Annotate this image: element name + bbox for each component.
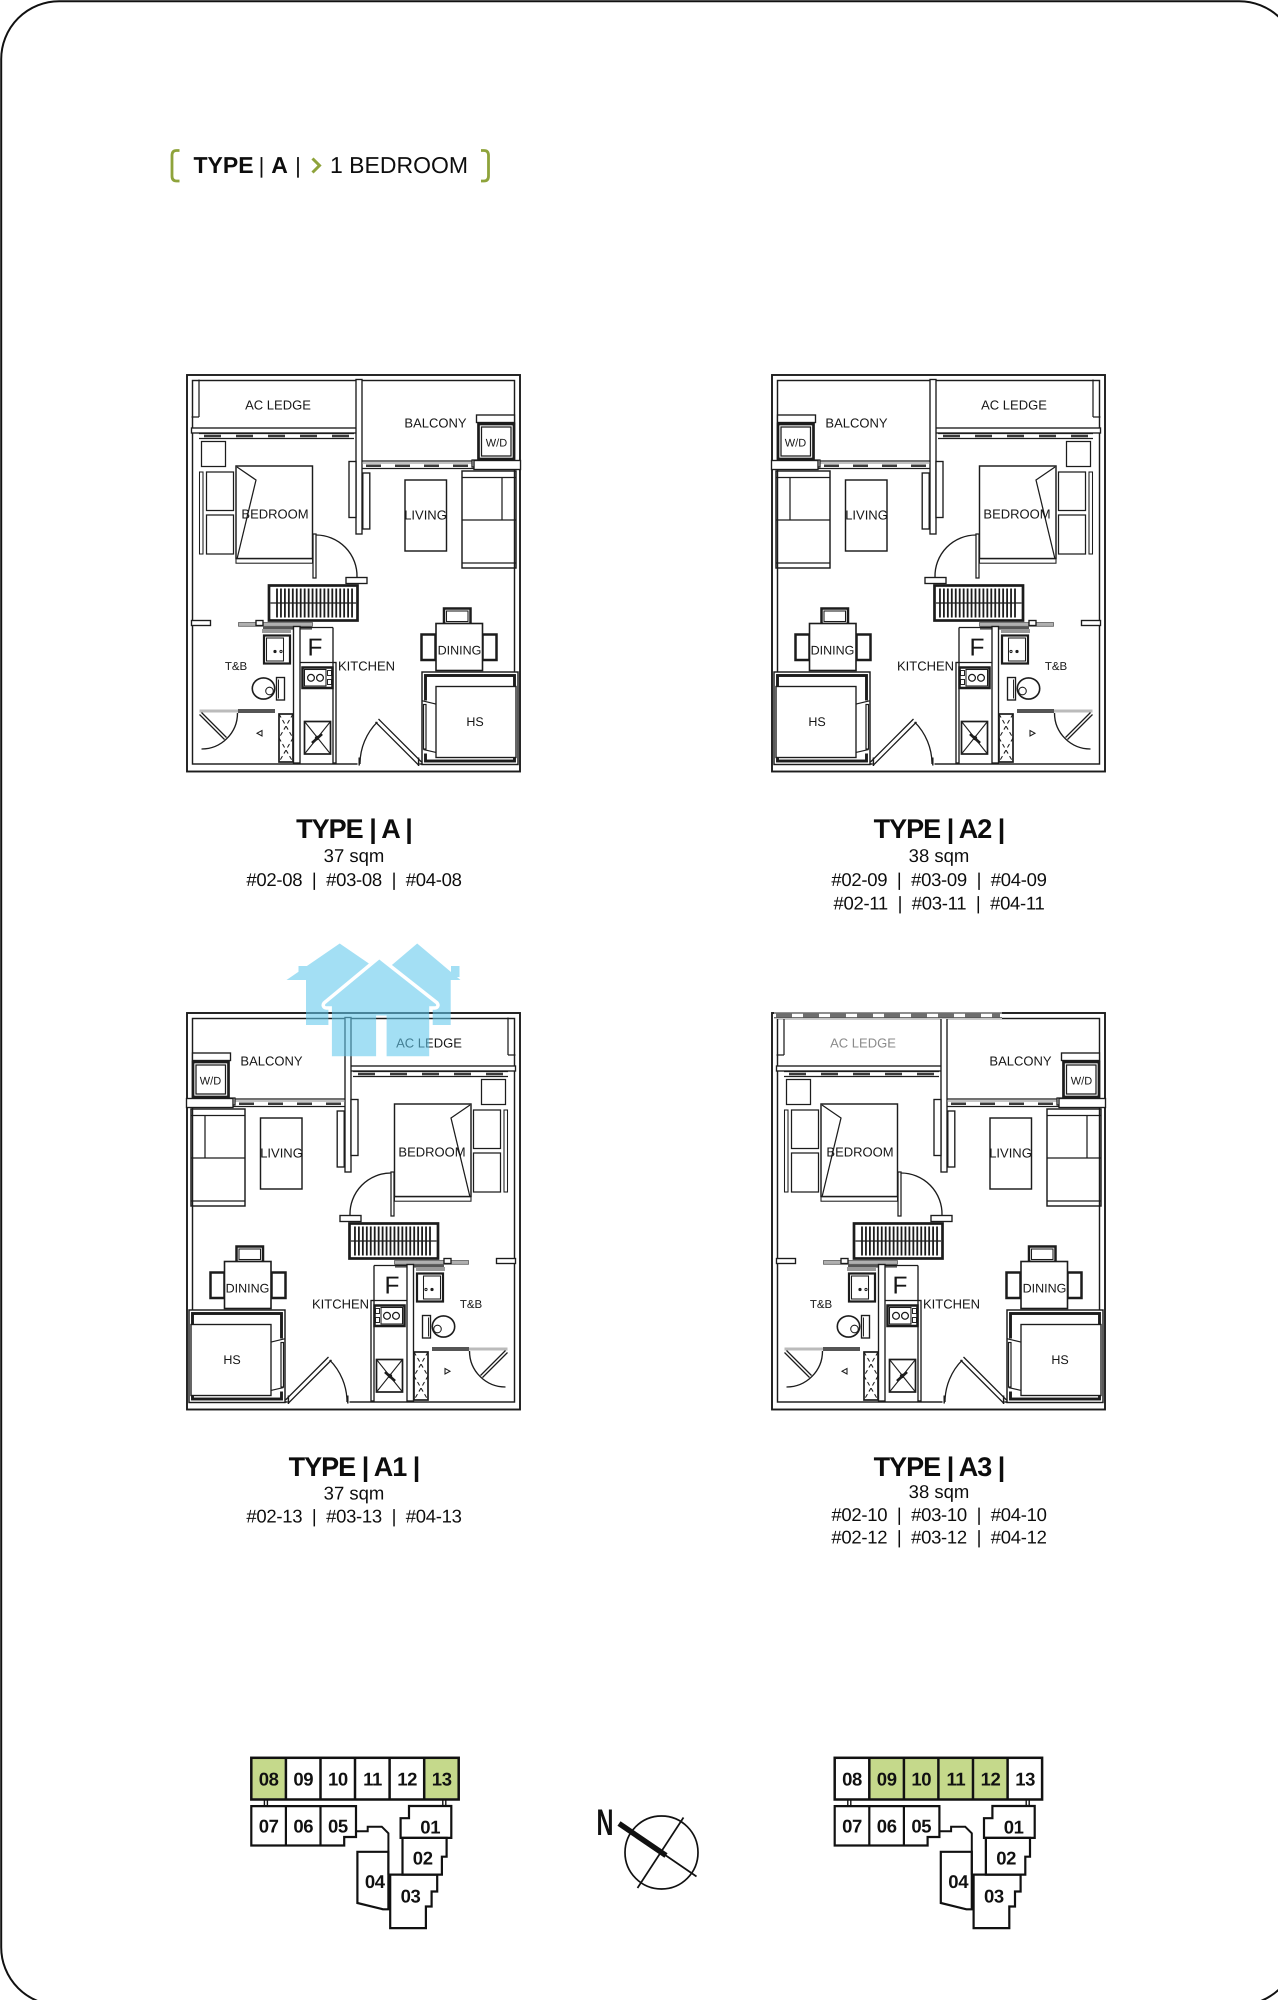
svg-text:W/D: W/D (200, 1076, 221, 1088)
svg-text:KITCHEN: KITCHEN (338, 659, 395, 674)
svg-text:#02-09 | #03-09 | #04-09: #02-09 | #03-09 | #04-09 (831, 869, 1046, 890)
svg-text:KITCHEN: KITCHEN (923, 1297, 980, 1312)
svg-text:HS: HS (1051, 1353, 1068, 1367)
svg-text:AC LEDGE: AC LEDGE (830, 1036, 896, 1051)
svg-text:DINING: DINING (811, 644, 855, 658)
svg-text:W/D: W/D (785, 438, 806, 450)
svg-text:F: F (308, 634, 323, 661)
svg-text:TYPE | A1 |: TYPE | A1 | (289, 1452, 420, 1482)
svg-text:T&B: T&B (460, 1299, 483, 1311)
svg-text:#02-11 | #03-11 | #04-11: #02-11 | #03-11 | #04-11 (833, 893, 1044, 914)
svg-text:LIVING: LIVING (989, 1146, 1032, 1161)
svg-text:TYPE: TYPE (194, 152, 254, 178)
svg-text:A: A (271, 152, 288, 178)
svg-text:BALCONY: BALCONY (404, 416, 466, 431)
svg-text:T&B: T&B (225, 661, 248, 673)
svg-text:TYPE | A3 |: TYPE | A3 | (874, 1452, 1005, 1482)
svg-text:38 sqm: 38 sqm (909, 1481, 970, 1502)
svg-text:BEDROOM: BEDROOM (398, 1145, 465, 1160)
svg-text:KITCHEN: KITCHEN (312, 1297, 369, 1312)
svg-text:DINING: DINING (438, 644, 482, 658)
svg-text:HS: HS (808, 715, 825, 729)
svg-text:BEDROOM: BEDROOM (241, 507, 308, 522)
svg-text:#02-10 | #03-10 | #04-10: #02-10 | #03-10 | #04-10 (831, 1504, 1046, 1525)
svg-text:BALCONY: BALCONY (240, 1054, 302, 1069)
svg-text:KITCHEN: KITCHEN (897, 659, 954, 674)
svg-text:#02-08 | #03-08 | #04-08: #02-08 | #03-08 | #04-08 (246, 869, 461, 890)
svg-text:LIVING: LIVING (260, 1146, 303, 1161)
svg-text:LIVING: LIVING (404, 508, 447, 523)
svg-text:F: F (385, 1272, 400, 1299)
svg-text:HS: HS (223, 1353, 240, 1367)
svg-text:AC LEDGE: AC LEDGE (981, 398, 1047, 413)
svg-text:N: N (597, 1802, 614, 1843)
svg-text:TYPE | A2 |: TYPE | A2 | (874, 814, 1005, 844)
svg-text:W/D: W/D (486, 438, 507, 450)
svg-text:T&B: T&B (1045, 661, 1068, 673)
svg-text:DINING: DINING (1023, 1282, 1067, 1296)
svg-text:|: | (295, 153, 301, 178)
svg-text:T&B: T&B (810, 1299, 833, 1311)
svg-text:DINING: DINING (226, 1282, 270, 1296)
svg-text:#02-13 | #03-13 | #04-13: #02-13 | #03-13 | #04-13 (246, 1506, 461, 1527)
svg-text:37 sqm: 37 sqm (324, 1483, 385, 1504)
svg-text:HS: HS (466, 715, 483, 729)
svg-text:F: F (970, 634, 985, 661)
svg-text:BEDROOM: BEDROOM (826, 1145, 893, 1160)
svg-text:F: F (893, 1272, 908, 1299)
svg-text:BALCONY: BALCONY (989, 1054, 1051, 1069)
svg-text:AC LEDGE: AC LEDGE (245, 398, 311, 413)
svg-text:|: | (259, 153, 265, 178)
svg-text:37 sqm: 37 sqm (324, 845, 385, 866)
svg-text:1 BEDROOM: 1 BEDROOM (330, 152, 468, 178)
svg-text:W/D: W/D (1071, 1076, 1092, 1088)
svg-text:#02-12 | #03-12 | #04-12: #02-12 | #03-12 | #04-12 (831, 1527, 1046, 1548)
svg-text:BALCONY: BALCONY (825, 416, 887, 431)
svg-text:LIVING: LIVING (845, 508, 888, 523)
svg-text:BEDROOM: BEDROOM (983, 507, 1050, 522)
svg-text:38 sqm: 38 sqm (909, 845, 970, 866)
svg-text:TYPE | A |: TYPE | A | (296, 814, 412, 844)
